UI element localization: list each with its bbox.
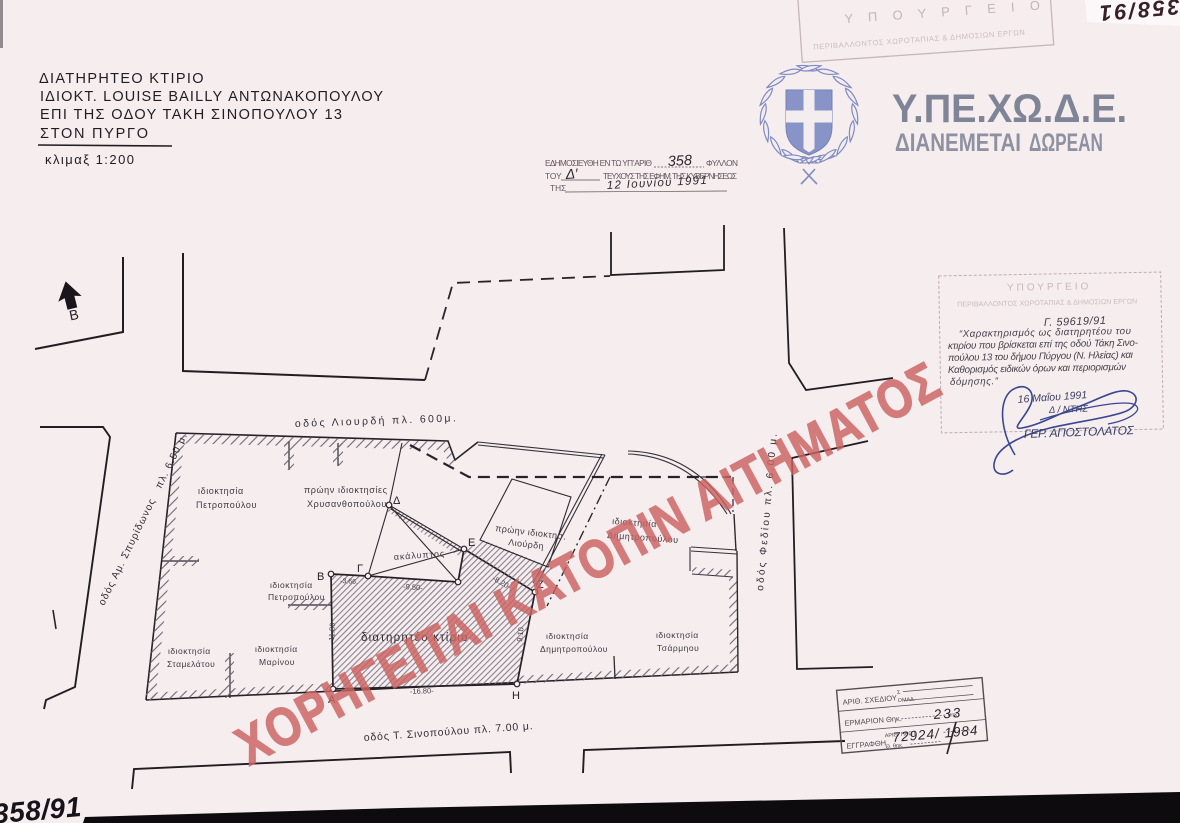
svg-text:E: E: [468, 537, 475, 549]
svg-text:Λιούρδη: Λιούρδη: [508, 537, 545, 551]
svg-text:ΕΠΙ ΤΗΣ ΟΔΟΥ ΤΑΚΗ ΣΙΝΟΠΟΥΛΟΥ 1: ΕΠΙ ΤΗΣ ΟΔΟΥ ΤΑΚΗ ΣΙΝΟΠΟΥΛΟΥ 13: [40, 107, 344, 123]
svg-text:ΙΔΙΟΚΤ. LOUISE BAILLY ΑΝΤΩΝΑΚΟ: ΙΔΙΟΚΤ. LOUISE BAILLY ΑΝΤΩΝΑΚΟΠΟΥΛΟΥ: [40, 89, 385, 105]
svg-text:ΕΔΗΜΟΣΙΕΥΘΗ ΕΝ ΤΩ ΥΠ’ ΑΡΙΘ: ΕΔΗΜΟΣΙΕΥΘΗ ΕΝ ΤΩ ΥΠ’ ΑΡΙΘ: [545, 158, 653, 168]
svg-text:Τσάρμηου: Τσάρμηου: [657, 643, 699, 653]
svg-text:Υ Π Ο Υ Ρ Γ Ε Ι Ο: Υ Π Ο Υ Ρ Γ Ε Ι Ο: [844, 0, 1041, 26]
svg-text:ΔΙΑΤΗΡΗΤΕΟ ΚΤΙΡΙΟ: ΔΙΑΤΗΡΗΤΕΟ ΚΤΙΡΙΟ: [39, 71, 206, 87]
svg-text:-9.50-: -9.50-: [403, 582, 424, 592]
svg-text:233: 233: [932, 705, 963, 722]
svg-text:ΦΥΛΛΟΝ: ΦΥΛΛΟΝ: [706, 158, 738, 168]
svg-text:ιδιοκτησία: ιδιοκτησία: [198, 486, 244, 496]
svg-text:Χρυσανθοπούλου: Χρυσανθοπούλου: [307, 499, 387, 509]
svg-text:οδός Λιουρδή πλ. 600μ.: οδός Λιουρδή πλ. 600μ.: [295, 412, 457, 430]
svg-text:ΓΕΡ. ΑΠΟΣΤΟΛΑΤΟΣ: ΓΕΡ. ΑΠΟΣΤΟΛΑΤΟΣ: [1024, 423, 1135, 441]
svg-text:358: 358: [667, 153, 692, 170]
svg-text:ΥΠΟΥΡΓΕΙΟ: ΥΠΟΥΡΓΕΙΟ: [1007, 281, 1092, 293]
svg-text:οδός Τ. Σινοπούλου πλ. 7.00 μ.: οδός Τ. Σινοπούλου πλ. 7.00 μ.: [363, 720, 533, 744]
svg-text:Σ: Σ: [897, 690, 902, 696]
svg-text:ΟΜΑΔ.: ΟΜΑΔ.: [897, 697, 916, 705]
svg-text:ακάλυπτος: ακάλυπτος: [393, 548, 445, 562]
svg-text:ιδιοκτησία: ιδιοκτησία: [168, 646, 211, 656]
svg-text:ΠΕΡΙΒΑΛΛΟΝΤΟΣ ΧΩΡΟΤΑΠΙΑΣ & ΔΗ: ΠΕΡΙΒΑΛΛΟΝΤΟΣ ΧΩΡΟΤΑΠΙΑΣ & ΔΗΜΟΣΙΩΝ ΕΡΓΩ…: [813, 28, 1025, 52]
svg-text:ΧΟΡΗΓΕΙΤΑΙ ΚΑΤΟΠΙΝ ΑΙΤΗΜΑΤΟΣ: ΧΟΡΗΓΕΙΤΑΙ ΚΑΤΟΠΙΝ ΑΙΤΗΜΑΤΟΣ: [226, 350, 951, 776]
svg-text:Καθορισμός ειδικών όρων και πε: Καθορισμός ειδικών όρων και περιορισμών: [948, 362, 1126, 376]
svg-text:Πετροπούλου: Πετροπούλου: [196, 500, 257, 510]
svg-text:κλιμαξ 1:200: κλιμαξ 1:200: [45, 152, 135, 167]
svg-text:ΠΕΡΙΒΑΛΛΟΝΤΟΣ ΧΩΡΟΤΑΠΙΑΣ & ΔΗΜ: ΠΕΡΙΒΑΛΛΟΝΤΟΣ ΧΩΡΟΤΑΠΙΑΣ & ΔΗΜΟΣΙΩΝ ΕΡΓΩ…: [957, 298, 1137, 308]
svg-text:ΔΩΡΕΑΝ: ΔΩΡΕΑΝ: [1029, 129, 1103, 157]
svg-text:ΔΙΑΝΕΜΕΤΑΙ: ΔΙΑΝΕΜΕΤΑΙ: [895, 129, 1021, 157]
svg-text:Δ: Δ: [393, 495, 401, 507]
svg-text:Πετροπούλου: Πετροπούλου: [268, 592, 325, 602]
svg-text:πρώην ιδιοκτησίες: πρώην ιδιοκτησίες: [304, 485, 388, 495]
svg-text:Γ: Γ: [357, 563, 363, 575]
svg-text:οδός Αμ. Σπυρίδωνος πλ. 6.50: οδός Αμ. Σπυρίδωνος πλ. 6.50 μ.: [96, 431, 190, 607]
svg-text:Μαρίνου: Μαρίνου: [259, 657, 295, 667]
svg-text:Υ.ΠΕ.ΧΩ.Δ.Ε.: Υ.ΠΕ.ΧΩ.Δ.Ε.: [892, 87, 1127, 131]
svg-text:ΤΗΣ: ΤΗΣ: [550, 183, 566, 193]
svg-text:ΤΟΥ: ΤΟΥ: [545, 171, 562, 181]
svg-text:ΕΓΓΡΑΦΘΗ: ΕΓΓΡΑΦΘΗ: [846, 738, 886, 750]
svg-text:-3.66.: -3.66.: [340, 578, 358, 586]
svg-text:ιδιοκτησία: ιδιοκτησία: [255, 644, 298, 654]
svg-text:ιδιοκτησία: ιδιοκτησία: [656, 630, 699, 640]
svg-text:δόμησης.”: δόμησης.”: [950, 376, 999, 388]
svg-text:ΣΤΟΝ ΠΥΡΓΟ: ΣΤΟΝ ΠΥΡΓΟ: [40, 126, 150, 142]
svg-text:ΕΡΜΑΡΙΟΝ Θηκ.: ΕΡΜΑΡΙΟΝ Θηκ.: [844, 714, 902, 728]
svg-text:11.80: 11.80: [327, 622, 337, 641]
svg-text:ιδιοκτησία: ιδιοκτησία: [546, 631, 589, 641]
svg-text:ιδιοκτησία: ιδιοκτησία: [270, 580, 313, 590]
svg-text:Δ′: Δ′: [564, 165, 579, 182]
svg-text:Δημητροπούλου: Δημητροπούλου: [540, 644, 608, 654]
svg-text:ΑΡΙΘ. ΣΧΕΔΙΟΥ: ΑΡΙΘ. ΣΧΕΔΙΟΥ: [842, 693, 897, 707]
svg-text:Σταμελάτου: Σταμελάτου: [167, 659, 215, 669]
svg-text:358/91: 358/91: [0, 791, 83, 823]
svg-text:B: B: [317, 571, 324, 583]
svg-text:H: H: [512, 690, 520, 702]
svg-text:B: B: [68, 306, 80, 324]
